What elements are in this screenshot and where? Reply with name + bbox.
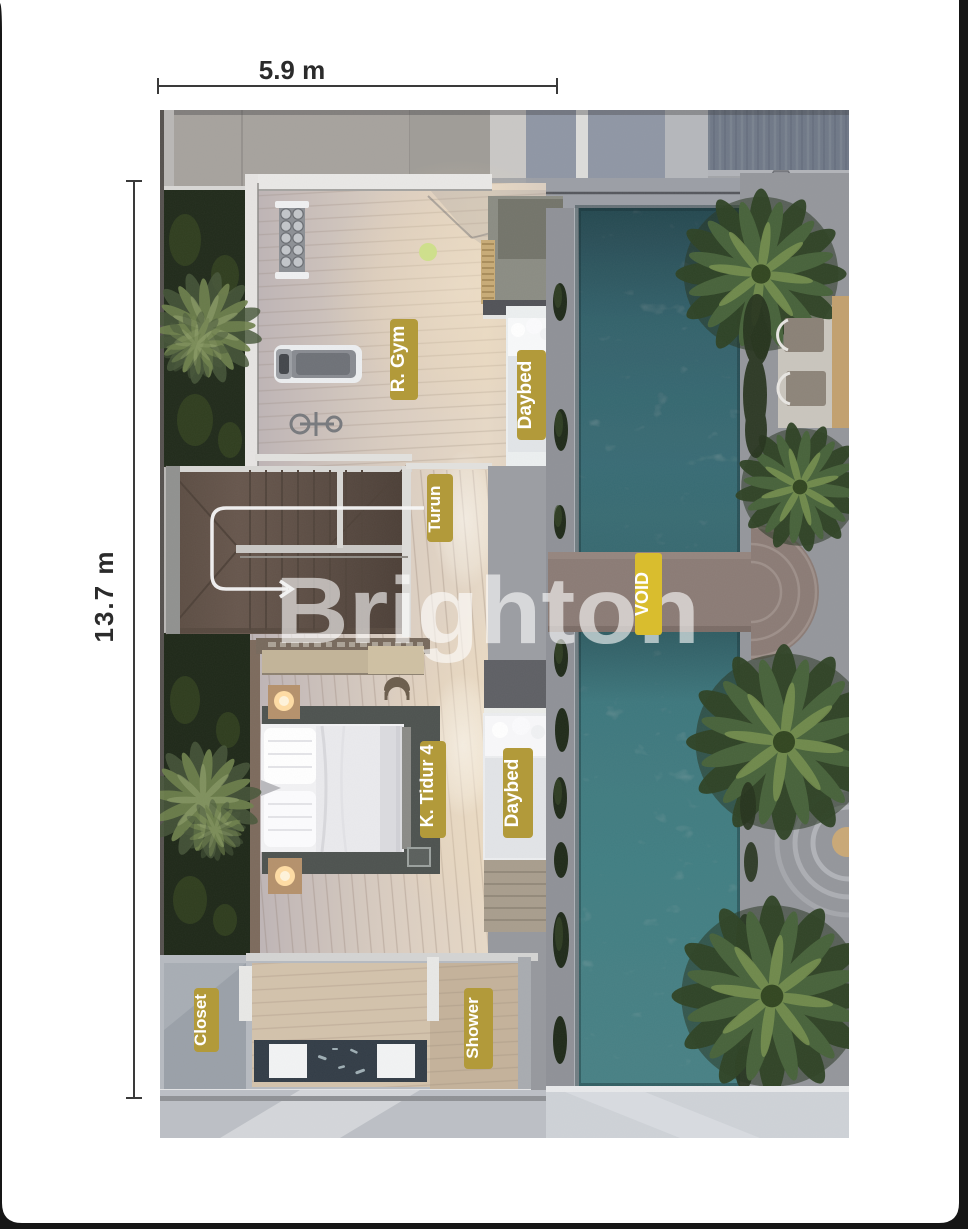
svg-text:Closet: Closet	[191, 994, 210, 1046]
svg-text:5.9 m: 5.9 m	[259, 55, 326, 85]
svg-text:Turun: Turun	[425, 486, 444, 533]
svg-text:R. Gym: R. Gym	[388, 326, 409, 393]
svg-text:K. Tidur 4: K. Tidur 4	[417, 745, 437, 828]
svg-text:13.7 m: 13.7 m	[89, 550, 119, 643]
svg-text:Daybed: Daybed	[502, 759, 523, 828]
svg-text:Shower: Shower	[463, 997, 482, 1059]
svg-text:VOID: VOID	[632, 572, 652, 616]
svg-text:Daybed: Daybed	[515, 361, 536, 430]
